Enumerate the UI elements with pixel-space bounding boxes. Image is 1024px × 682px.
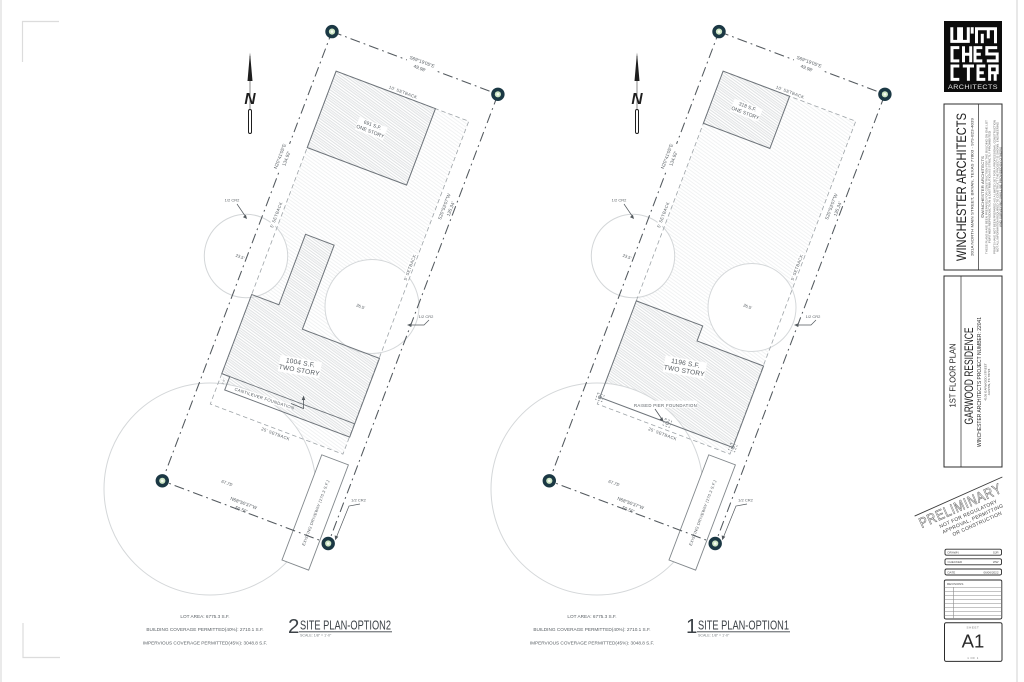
svg-text:WINCHESTER ARCHITECTS: WINCHESTER ARCHITECTS <box>953 113 969 261</box>
svg-text:1 OF 1: 1 OF 1 <box>967 656 979 660</box>
svg-text:1/2 CR2: 1/2 CR2 <box>612 198 627 203</box>
svg-text:FURTHER REPRODUCTION & DISTRIB: FURTHER REPRODUCTION & DISTRIBUTION IS S… <box>988 131 992 243</box>
svg-text:WW: WW <box>993 560 999 564</box>
svg-text:N: N <box>631 91 643 108</box>
svg-text:1/2 CR2: 1/2 CR2 <box>225 198 240 203</box>
svg-text:AUSTIN, TX 78723: AUSTIN, TX 78723 <box>987 369 991 396</box>
svg-text:SCALE: 1/8" = 1'-0": SCALE: 1/8" = 1'-0" <box>698 634 730 638</box>
svg-text:201A NORTH MAIN STREET, BRYAN,: 201A NORTH MAIN STREET, BRYAN, TEXAS 778… <box>970 117 975 256</box>
svg-text:IMPERVIOUS COVERAGE PERMITTED(: IMPERVIOUS COVERAGE PERMITTED(45%): 3048… <box>143 641 267 646</box>
svg-text:SITE PLAN-OPTION1: SITE PLAN-OPTION1 <box>698 618 789 633</box>
svg-text:SHEET: SHEET <box>966 626 979 630</box>
svg-text:CHECKED: CHECKED <box>948 560 964 564</box>
svg-text:REVISIONS: REVISIONS <box>947 582 963 586</box>
svg-text:WINCHESTER ARCHITECTS PROJECT: WINCHESTER ARCHITECTS PROJECT NUMBER: 22… <box>977 317 983 447</box>
svg-text:SJR: SJR <box>993 551 1000 555</box>
svg-text:1: 1 <box>686 615 697 638</box>
svg-text:N: N <box>244 91 256 108</box>
svg-text:©WINCHESTER ARCHITECTS: ©WINCHESTER ARCHITECTS <box>981 155 985 218</box>
svg-text:DRAWN: DRAWN <box>948 551 959 555</box>
svg-text:SITE PLAN-OPTION2: SITE PLAN-OPTION2 <box>300 618 391 633</box>
svg-text:LOT AREA: 6775.3 S.F.: LOT AREA: 6775.3 S.F. <box>180 614 229 619</box>
svg-text:1/2 CR2: 1/2 CR2 <box>806 314 821 319</box>
svg-text:1/2 CR2: 1/2 CR2 <box>419 314 434 319</box>
svg-text:LOT AREA: 6775.3 S.F.: LOT AREA: 6775.3 S.F. <box>567 614 616 619</box>
svg-text:A1: A1 <box>962 631 985 652</box>
svg-text:RAISED PIER FOUNDATION: RAISED PIER FOUNDATION <box>634 403 697 408</box>
svg-text:BUILDING COVERAGE PERMITTED(40: BUILDING COVERAGE PERMITTED(40%): 2710.1… <box>146 627 263 632</box>
svg-text:IMPERVIOUS COVERAGE PERMITTED(: IMPERVIOUS COVERAGE PERMITTED(45%): 3048… <box>530 641 654 646</box>
svg-text:BUILDING COVERAGE PERMITTED(40: BUILDING COVERAGE PERMITTED(40%): 2710.1… <box>533 627 650 632</box>
svg-text:DATE: DATE <box>948 570 956 574</box>
svg-text:ARCHITECTS: ARCHITECTS <box>948 84 998 91</box>
svg-text:AND SURVEYING SHALL BE PROVIDE: AND SURVEYING SHALL BE PROVIDED BY OTHER… <box>999 147 1003 227</box>
svg-text:2: 2 <box>288 615 299 638</box>
svg-text:1/2 CR2: 1/2 CR2 <box>738 498 753 503</box>
svg-text:GARWOOD RESIDENCE: GARWOOD RESIDENCE <box>964 327 976 424</box>
svg-text:1/2 CR2: 1/2 CR2 <box>351 498 366 503</box>
svg-text:1ST FLOOR PLAN: 1ST FLOOR PLAN <box>949 343 958 407</box>
svg-text:SCALE: 1/8" = 1'-0": SCALE: 1/8" = 1'-0" <box>300 634 332 638</box>
svg-text:06/06/2022: 06/06/2022 <box>983 570 998 574</box>
